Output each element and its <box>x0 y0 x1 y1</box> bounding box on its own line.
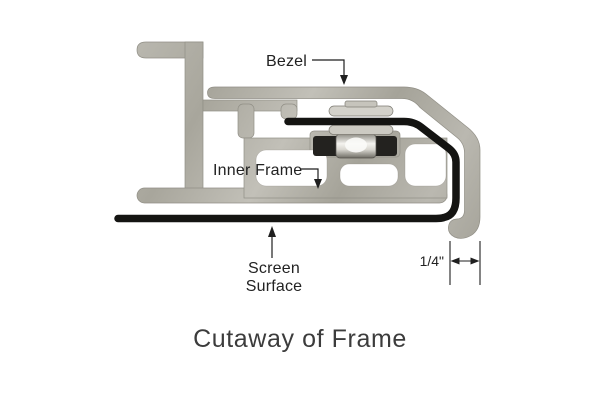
bezel-arrowhead <box>340 75 348 85</box>
dimension-arrowhead-right <box>471 258 480 265</box>
dimension-arrowhead-left <box>451 258 460 265</box>
inner-frame-tab <box>238 104 254 138</box>
inner-frame-slot-middle <box>340 164 398 186</box>
callout-screen-surface: Screen Surface <box>246 226 303 295</box>
snap-barrel-highlight <box>345 138 367 153</box>
snap-fastener <box>313 101 397 158</box>
bezel-leader-line <box>312 60 344 76</box>
snap-cap-top <box>345 101 377 107</box>
diagram-title: Cutaway of Frame <box>193 325 407 353</box>
inner-frame-stem <box>185 42 203 194</box>
screen-surface-label-line1: Screen <box>248 260 300 277</box>
cutaway-svg: Bezel Inner Frame Screen Surface 1/4" Cu… <box>0 0 600 400</box>
dimension-quarter-inch: 1/4" <box>420 241 480 285</box>
snap-cap <box>329 106 393 116</box>
screen-surface-label-line2: Surface <box>246 278 303 295</box>
dimension-label: 1/4" <box>420 253 444 269</box>
screen-surface-arrowhead <box>268 226 276 237</box>
callout-bezel: Bezel <box>266 53 348 85</box>
bezel-label: Bezel <box>266 53 307 70</box>
inner-frame-slot-right <box>405 144 446 186</box>
inner-frame-lip <box>281 104 297 119</box>
inner-frame-label: Inner Frame <box>213 162 302 179</box>
frame-cutaway-diagram: Bezel Inner Frame Screen Surface 1/4" Cu… <box>0 0 600 400</box>
snap-flange <box>329 126 393 135</box>
